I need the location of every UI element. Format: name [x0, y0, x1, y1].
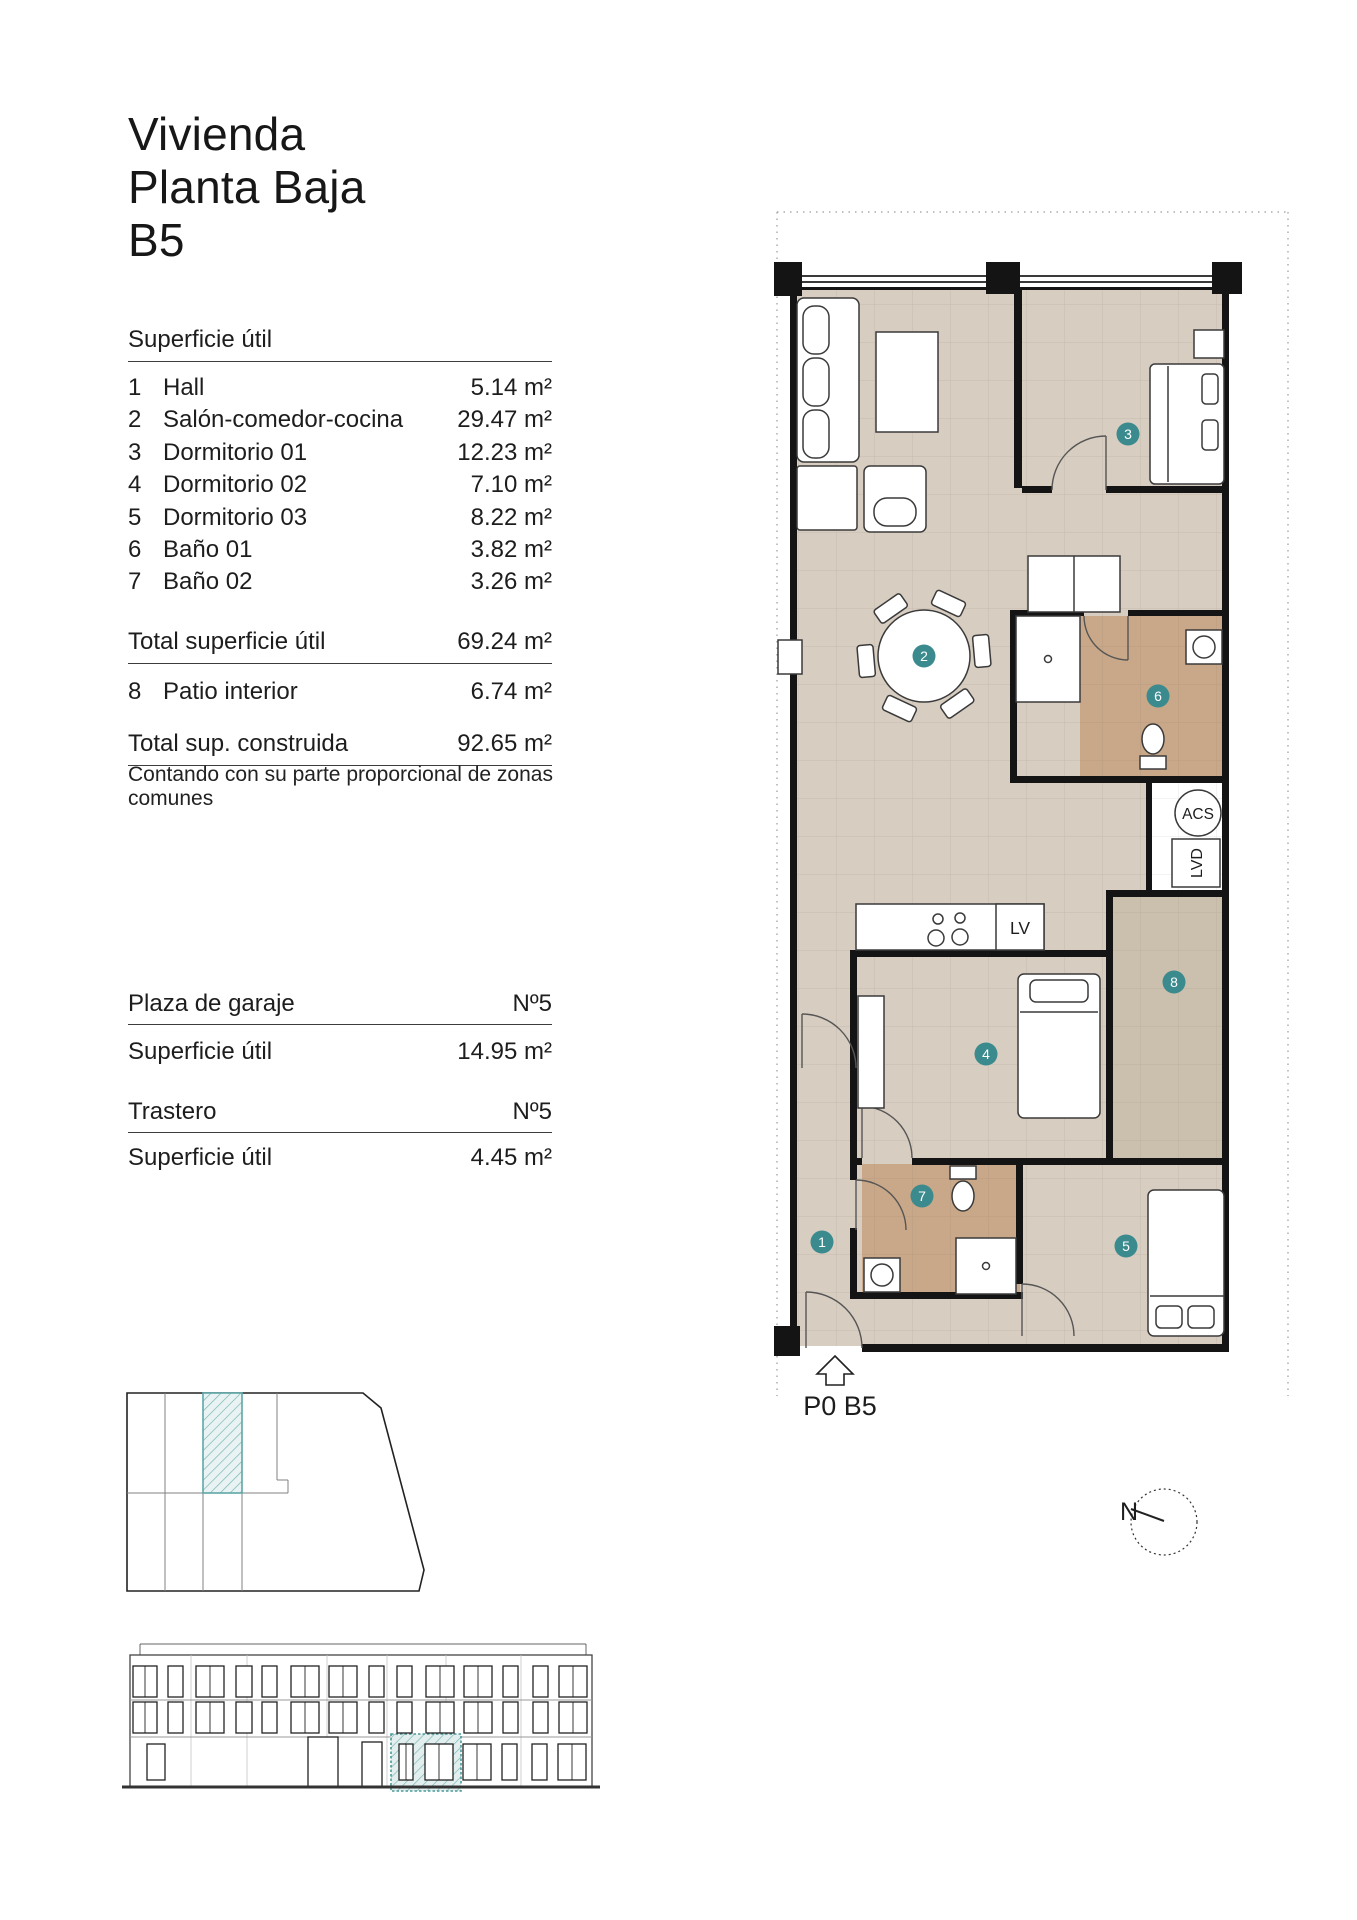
room-marker-7: 7	[911, 1185, 934, 1208]
building-elevation	[115, 1630, 615, 1805]
table-row: 7 Baño 02 3.26 m²	[128, 566, 552, 598]
svg-text:2: 2	[920, 648, 928, 664]
plan-label: P0 B5	[803, 1391, 877, 1421]
room-marker-1: 1	[811, 1231, 834, 1254]
table-row: 2 Salón-comedor-cocina 29.47 m²	[128, 404, 552, 436]
surface-table-header: Superficie útil	[128, 326, 552, 362]
site-key-plan	[115, 1385, 460, 1605]
svg-text:8: 8	[1170, 974, 1178, 990]
table-row: 5 Dormitorio 03 8.22 m²	[128, 502, 552, 534]
room-marker-4: 4	[975, 1043, 998, 1066]
lvd-label: LVD	[1189, 848, 1206, 878]
room-marker-6: 6	[1147, 685, 1170, 708]
svg-text:6: 6	[1154, 688, 1162, 704]
site-highlight-unit	[203, 1393, 242, 1493]
plan-sheet: Vivienda Planta Baja B5 Superficie útil …	[0, 0, 1357, 1920]
garage-area-row: Superficie útil 14.95 m²	[128, 1038, 552, 1066]
svg-text:7: 7	[918, 1188, 926, 1204]
patio-row: 8 Patio interior 6.74 m²	[128, 676, 552, 708]
svg-text:1: 1	[818, 1234, 826, 1250]
storage-row: Trastero Nº5	[128, 1098, 552, 1133]
floor-plan: ACS LVD LV 1 2 3 4 5 6 7 8 P0 B5	[755, 200, 1300, 1440]
title-line-1: Vivienda	[128, 108, 365, 161]
entrance-arrow	[817, 1356, 853, 1385]
north-compass: N	[1090, 1470, 1260, 1590]
title-line-2: Planta Baja	[128, 161, 365, 214]
total-useful-area-row: Total superficie útil 69.24 m²	[128, 628, 552, 664]
title-line-3: B5	[128, 214, 365, 267]
garage-row: Plaza de garaje Nº5	[128, 990, 552, 1025]
table-row: 1 Hall 5.14 m²	[128, 372, 552, 404]
common-zones-note: Contando con su parte proporcional de zo…	[128, 763, 568, 811]
table-row: 4 Dormitorio 02 7.10 m²	[128, 469, 552, 501]
room-marker-2: 2	[913, 645, 936, 668]
room-marker-3: 3	[1117, 423, 1140, 446]
total-built-area-row: Total sup. construida 92.65 m²	[128, 730, 552, 766]
acs-label: ACS	[1182, 806, 1214, 823]
svg-text:5: 5	[1122, 1238, 1130, 1254]
room-marker-5: 5	[1115, 1235, 1138, 1258]
svg-text:4: 4	[982, 1046, 990, 1062]
table-row: 3 Dormitorio 01 12.23 m²	[128, 437, 552, 469]
storage-area-row: Superficie útil 4.45 m²	[128, 1144, 552, 1172]
lv-label: LV	[1010, 918, 1030, 938]
room-marker-8: 8	[1163, 971, 1186, 994]
page-title: Vivienda Planta Baja B5	[128, 108, 365, 267]
north-label: N	[1120, 1498, 1138, 1526]
surface-table: 1 Hall 5.14 m² 2 Salón-comedor-cocina 29…	[128, 372, 552, 599]
svg-text:3: 3	[1124, 426, 1132, 442]
table-row: 6 Baño 01 3.82 m²	[128, 534, 552, 566]
